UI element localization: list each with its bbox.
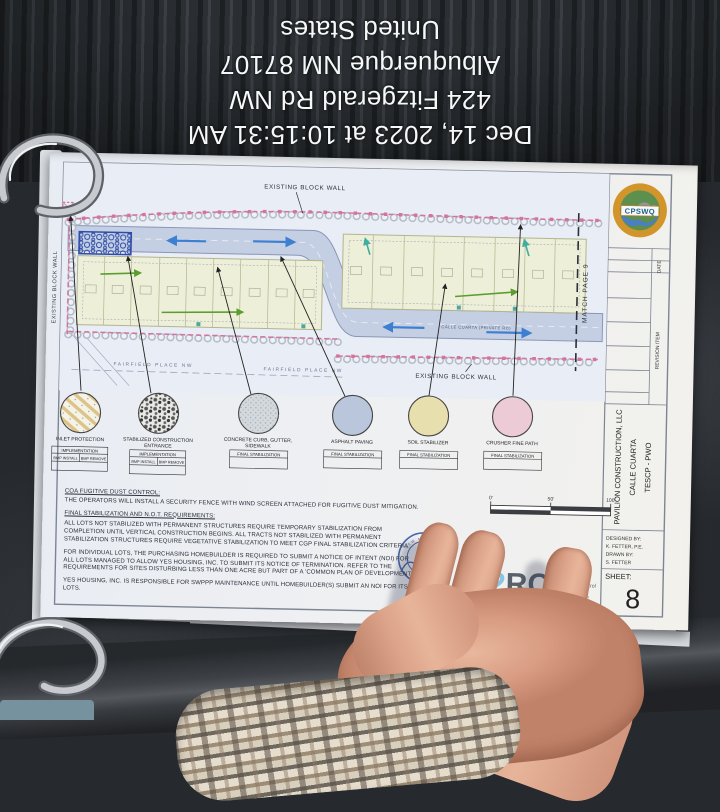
- plan-sheet: MATCH PAGE 9 EXISTING BLOCK WALL EXISTIN…: [40, 152, 698, 630]
- wall-label-left: EXISTING BLOCK WALL: [51, 251, 59, 324]
- project-sheet-type: TESCP - PWO: [643, 442, 653, 492]
- legend-table-3-header: FINAL STABILIZATION: [237, 451, 280, 457]
- legend-table-5-header: FINAL STABILIZATION: [407, 452, 450, 458]
- scale-bar: 0' 50' 100': [489, 495, 616, 516]
- legend-label-2: STABILIZED CONSTRUCTIONENTRANCE: [123, 437, 194, 450]
- legend-label-6: CRUSHER FINE PATH: [486, 440, 538, 447]
- photo-of-swppp-plan-sheet: { "overlay": { "line1": "Dec 14, 2023 at…: [0, 0, 720, 720]
- legend-table-1-col2: BMP REMOVE: [81, 457, 107, 462]
- legend-symbol-asphalt: [332, 395, 373, 436]
- legend-table-4-header: FINAL STABILIZATION: [331, 451, 374, 457]
- timestamp-street: 424 Fitzgerald Rd NW: [95, 82, 625, 117]
- swppp-notes: COA FUGITIVE DUST CONTROL: THE OPERATORS…: [63, 488, 419, 605]
- designed-by-label: DESIGNED BY:: [606, 536, 641, 543]
- legend-table-2-col1: BMP INSTALL: [131, 460, 155, 465]
- title-block: CPSWQ DATE REVISION ITEM PAVILION CONSTR…: [600, 183, 671, 615]
- cpswq-logo: CPSWQ: [612, 183, 667, 238]
- drawn-by-label: DRAWN BY:: [606, 552, 634, 559]
- note-stabilization: ALL LOTS NOT STABILIZED WITH PERMANENT S…: [64, 521, 418, 552]
- blue-object-bottom-left: [0, 700, 94, 720]
- project-name: CALLE CUARTA: [628, 438, 638, 496]
- legend-label-5: SOIL STABILIZER: [408, 440, 449, 447]
- legend-symbol-crusher-fine: [492, 396, 533, 437]
- lot-block-right: [342, 234, 586, 313]
- legend-label-4: ASPHALT PAVING: [331, 439, 373, 446]
- legend-table-2-header: IMPLEMENTATION: [139, 451, 176, 457]
- legend-label-1: INLET PROTECTION: [56, 436, 105, 443]
- project-owner: PAVILION CONSTRUCTION, LLC: [612, 409, 623, 525]
- legend-label-3: CONCRETE CURB, GUTTER,SIDEWALK: [224, 437, 293, 450]
- drawn-by-value: S. FETTER: [605, 560, 631, 567]
- cpswq-text: CPSWQ: [625, 207, 656, 217]
- legend-table-1-header: IMPLEMENTATION: [61, 448, 98, 454]
- timestamp-city: Albuquerque NM 87107: [95, 47, 625, 82]
- match-page-label: MATCH PAGE 9: [582, 263, 590, 323]
- legend-symbol-inlet-protection: [60, 392, 101, 433]
- stabilized-construction-entrance-symbol: [79, 232, 131, 255]
- timestamp-country: United States: [95, 12, 625, 47]
- note-individual-lots: FOR INDIVIDUAL LOTS, THE PURCHASING HOME…: [63, 549, 417, 580]
- revision-date-header: DATE: [657, 260, 663, 274]
- site-plan-view: MATCH PAGE 9 EXISTING BLOCK WALL EXISTIN…: [50, 162, 610, 402]
- sheet-number: 8: [625, 584, 641, 614]
- legend-symbol-soil-stabilizer: [408, 396, 449, 437]
- scale-50: 50': [548, 496, 555, 502]
- designed-by-value: K. FETTER, P.E.: [606, 544, 643, 551]
- legend-symbol-stabilized-entrance: [138, 393, 179, 434]
- timestamp-date: Dec 14, 2023 at 10:15:31 AM: [95, 117, 625, 152]
- scale-0: 0': [489, 495, 493, 501]
- revision-item-header: REVISION ITEM: [655, 332, 662, 369]
- note-yes-housing: YES HOUSING, INC. IS RESPONSIBLE FOR SWP…: [63, 578, 417, 601]
- legend-table-1-col1: BMP INSTALL: [53, 456, 77, 461]
- bmp-legend: INLET PROTECTION STABILIZED CONSTRUCTION…: [51, 387, 543, 482]
- timestamp-overlay: Dec 14, 2023 at 10:15:31 AM 424 Fitzgera…: [95, 12, 625, 152]
- legend-table-2-col2: BMP REMOVE: [159, 460, 185, 465]
- sheet-label: SHEET:: [605, 572, 631, 582]
- legend-table-6-header: FINAL STABILIZATION: [491, 453, 534, 459]
